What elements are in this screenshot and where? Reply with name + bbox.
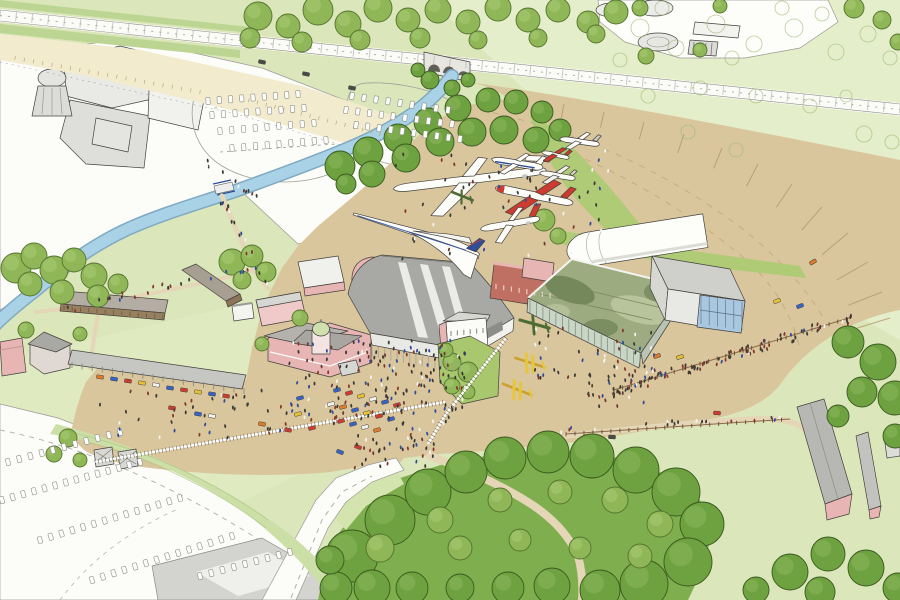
parked-car-outline <box>267 107 272 114</box>
parked-car-outline <box>457 135 462 142</box>
tree-highlight <box>338 176 348 186</box>
parked-car-outline <box>367 109 372 116</box>
parked-car-outline <box>206 97 211 104</box>
tree-highlight <box>881 384 898 401</box>
tree-highlight <box>511 531 522 542</box>
clubhouse-dome <box>313 322 330 336</box>
tree-highlight <box>399 575 415 591</box>
tree-highlight <box>294 34 304 44</box>
parked-car-outline <box>273 92 278 99</box>
tree-highlight <box>579 13 590 24</box>
tree-highlight <box>885 426 897 438</box>
parked-car-outline <box>265 141 270 148</box>
parked-car-outline <box>353 121 358 128</box>
visitor <box>444 352 446 356</box>
tree-highlight <box>430 509 443 522</box>
tree-highlight <box>846 0 856 10</box>
tree-highlight <box>110 276 120 286</box>
parked-car-outline <box>262 93 267 100</box>
parked-car-outline <box>400 127 405 134</box>
tree-highlight <box>490 490 502 502</box>
parked-car-outline <box>253 124 258 131</box>
parked-car-outline <box>296 90 301 97</box>
parked-car-outline <box>241 143 246 150</box>
tree-highlight <box>352 32 362 42</box>
tree-highlight <box>829 407 840 418</box>
parked-car-outline <box>361 94 366 102</box>
tree-highlight <box>319 548 333 562</box>
tree-highlight <box>450 538 462 550</box>
tree-highlight <box>875 13 884 22</box>
vintage-car <box>194 390 201 395</box>
tree-highlight <box>356 140 371 155</box>
parked-car-outline <box>421 103 426 111</box>
tree-highlight <box>338 13 351 26</box>
tree-highlight <box>369 536 383 550</box>
parked-car-outline <box>265 123 270 130</box>
tree-highlight <box>518 10 530 22</box>
tree-highlight <box>20 274 32 286</box>
parked-car-outline <box>434 132 439 139</box>
parked-car-outline <box>402 114 407 121</box>
tree-highlight <box>64 250 76 262</box>
tree-highlight <box>61 431 70 440</box>
tree-highlight <box>574 438 596 460</box>
parked-car-outline <box>233 110 238 117</box>
visitor <box>588 393 590 397</box>
visitor <box>188 278 190 282</box>
visitor <box>589 374 591 378</box>
vintage-car <box>208 392 215 397</box>
tree-highlight <box>571 539 582 550</box>
tree-highlight <box>669 542 693 566</box>
parked-car-outline <box>229 126 234 133</box>
parked-car-outline <box>217 96 222 103</box>
tree-highlight <box>684 506 706 528</box>
tree-highlight <box>548 0 560 12</box>
parked-car-outline <box>355 108 360 115</box>
parked-car-outline <box>302 104 307 111</box>
tree-highlight <box>84 265 97 278</box>
tree-highlight <box>398 10 410 22</box>
tree-highlight <box>650 513 663 526</box>
tree-highlight <box>20 323 28 331</box>
tree-highlight <box>235 273 244 282</box>
tree-highlight <box>461 120 475 134</box>
visitor <box>369 360 371 364</box>
parked-car-outline <box>377 124 382 131</box>
tree-highlight <box>278 16 290 28</box>
tree-highlight <box>74 454 81 461</box>
vintage-car <box>222 394 229 399</box>
tree-highlight <box>362 163 375 176</box>
tree-highlight <box>247 4 261 18</box>
tree-highlight <box>808 580 823 595</box>
tree-highlight <box>412 30 422 40</box>
tree-highlight <box>488 441 509 462</box>
parked-car-outline <box>253 142 258 149</box>
parked-car-outline <box>251 94 256 101</box>
tree-highlight <box>242 30 252 40</box>
tree-highlight <box>328 154 343 169</box>
tree-highlight <box>24 245 37 258</box>
tree-highlight <box>4 256 19 271</box>
tree-highlight <box>493 118 507 132</box>
parked-car-outline <box>241 125 246 132</box>
vintage-car <box>180 388 187 393</box>
tree-highlight <box>478 90 490 102</box>
parked-car-outline <box>445 106 450 114</box>
parked-car-outline <box>414 116 419 123</box>
tree-highlight <box>552 229 560 237</box>
tree-highlight <box>395 146 409 160</box>
parked-car-outline <box>312 137 317 144</box>
vintage-car <box>124 379 131 384</box>
tree-highlight <box>892 35 900 43</box>
tree-highlight <box>634 1 642 9</box>
parked-car-outline <box>391 112 396 119</box>
parked-car-outline <box>343 106 348 113</box>
aerial-illustration <box>0 0 900 600</box>
tree-highlight <box>630 546 642 558</box>
tree-highlight <box>410 473 433 496</box>
visitor <box>406 389 408 393</box>
tree-highlight <box>449 576 463 590</box>
parked-car-outline <box>433 104 438 112</box>
parked-car-outline <box>365 123 370 130</box>
parked-car-outline <box>438 119 443 126</box>
tree-highlight <box>814 540 831 557</box>
tree-highlight <box>446 81 454 89</box>
tree-highlight <box>495 575 511 591</box>
vintage-car <box>138 381 145 386</box>
tree-highlight <box>852 553 870 571</box>
tree-highlight <box>618 451 641 474</box>
parked-car-outline <box>446 134 451 141</box>
tree-highlight <box>714 0 721 7</box>
tree-highlight <box>606 2 618 14</box>
parked-car-outline <box>300 138 305 145</box>
parked-car-outline <box>279 106 284 113</box>
tree-highlight <box>850 380 865 395</box>
tree-highlight <box>222 251 235 264</box>
parked-car-outline <box>228 96 233 103</box>
tree-highlight <box>370 499 395 524</box>
tree-highlight <box>589 27 598 36</box>
visitor <box>413 350 415 354</box>
parked-car-outline <box>409 101 414 109</box>
tree-highlight <box>506 92 518 104</box>
parked-car-outline <box>397 99 402 107</box>
parked-car-outline <box>230 144 235 151</box>
tree-highlight <box>746 579 759 592</box>
kiosk-hut <box>232 303 254 321</box>
tree-highlight <box>323 575 339 591</box>
parked-car-outline <box>288 121 293 128</box>
parked-car-outline <box>300 120 305 127</box>
tree-highlight <box>43 258 57 272</box>
parked-car-outline <box>324 136 329 143</box>
tree-highlight <box>551 121 562 132</box>
tree-highlight <box>412 64 419 71</box>
tree-highlight <box>531 31 540 40</box>
tree-highlight <box>538 571 556 589</box>
tree-highlight <box>74 328 81 335</box>
pink-shed <box>0 338 26 376</box>
parked-car-outline <box>388 126 393 133</box>
tree-highlight <box>526 129 539 142</box>
tree-highlight <box>864 347 882 365</box>
visitor <box>413 364 415 368</box>
parked-car-outline <box>221 110 226 117</box>
parked-car-outline <box>290 105 295 112</box>
parked-car-outline <box>276 122 281 129</box>
parked-car-outline <box>239 95 244 102</box>
parked-car-outline <box>411 129 416 136</box>
tree-highlight <box>52 282 64 294</box>
parked-car-outline <box>218 127 223 134</box>
tree-highlight <box>640 49 648 57</box>
parked-car-outline <box>288 139 293 146</box>
tree-highlight <box>694 44 701 51</box>
vintage-car <box>110 377 117 382</box>
visitor <box>703 361 705 365</box>
museum-aerial-scene <box>0 0 900 600</box>
vintage-car <box>152 383 159 388</box>
parked-car-outline <box>312 119 317 126</box>
visitor <box>421 400 423 404</box>
parked-car-outline <box>423 131 428 138</box>
tree-highlight <box>462 74 469 81</box>
parked-car-outline <box>277 140 282 147</box>
tree-highlight <box>776 557 794 575</box>
tree-highlight <box>605 489 618 502</box>
tree-highlight <box>531 435 552 456</box>
parked-car-outline <box>373 96 378 104</box>
tree-highlight <box>89 287 100 298</box>
visitor <box>653 353 655 357</box>
tree-highlight <box>835 329 851 345</box>
parked-car-outline <box>210 111 215 118</box>
parked-car-outline <box>256 108 261 115</box>
tree-highlight <box>358 573 376 591</box>
parked-car-outline <box>349 92 354 100</box>
vintage-car <box>166 386 173 391</box>
vintage-car <box>608 435 615 439</box>
tree-highlight <box>446 379 454 387</box>
tree-highlight <box>294 311 302 319</box>
vintage-car <box>713 411 720 415</box>
tree-highlight <box>533 103 544 114</box>
tree-highlight <box>550 482 562 494</box>
tree-highlight <box>256 338 263 345</box>
visitor <box>442 422 444 426</box>
parked-car-outline <box>244 109 249 116</box>
tree-highlight <box>584 573 604 593</box>
vintage-car <box>96 375 103 380</box>
parked-car-outline <box>449 120 454 127</box>
visitor <box>591 384 593 388</box>
tree-highlight <box>458 12 470 24</box>
parked-car-outline <box>385 97 390 105</box>
tree-highlight <box>460 364 470 374</box>
tree-highlight <box>657 472 681 496</box>
parked-car-outline <box>284 91 289 98</box>
tree-highlight <box>471 33 480 42</box>
tree-highlight <box>449 455 470 476</box>
parked-car-outline <box>426 117 431 124</box>
parked-car-outline <box>379 111 384 118</box>
